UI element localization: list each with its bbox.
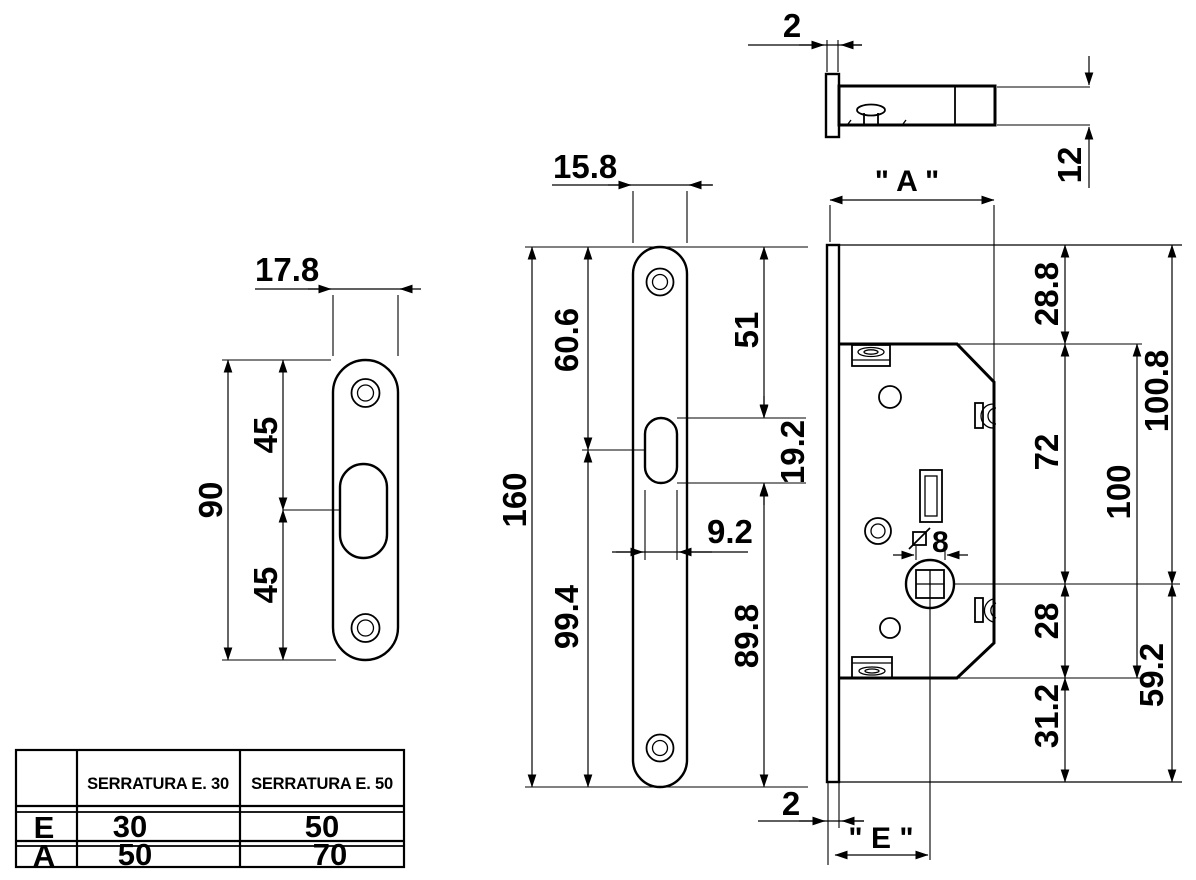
dim-label-89-8: 89.8: [728, 604, 765, 668]
lock-case-outline: [839, 344, 994, 678]
table-cell-A-50: 50: [118, 837, 152, 872]
faceplate-screw-hole-bottom: [647, 735, 674, 762]
faceplate-view: 15.8 160 60.6 99.4 51: [496, 148, 811, 787]
dim-case-width-A: " A ": [830, 165, 994, 382]
table-cell-A-70: 70: [313, 837, 347, 872]
dim-label-100: 100: [1100, 464, 1137, 519]
latch-bolt-bottom: [852, 657, 892, 678]
table-header-e50: SERRATURA E. 50: [251, 775, 393, 793]
dim-right-chain-1: 28.8 72 28 31.2: [1028, 245, 1065, 782]
dim-label-15-8: 15.8: [553, 148, 617, 185]
back-plate-screw-hole-top: [352, 379, 380, 407]
back-plate-slot: [340, 464, 387, 558]
dim-label-90: 90: [192, 482, 229, 519]
drawing-svg: 17.8 90 45 45: [0, 0, 1196, 880]
dim-right-chain-2: 100.8 59.2: [1133, 245, 1175, 782]
dim-side-plate-thickness: 2: [748, 7, 862, 72]
lock-case-view: " A " 8 28.8 72: [758, 165, 1182, 865]
back-plate-view: 17.8 90 45 45: [192, 251, 421, 660]
faceplate-latch-slot: [645, 418, 677, 483]
side-view-rivet: [848, 105, 906, 125]
dim-label-160: 160: [496, 472, 533, 527]
latch-bolt-top: [852, 345, 890, 366]
dim-faceplate-left-chain: 60.6 99.4: [548, 247, 645, 787]
dim-faceplate-width: 15.8: [552, 148, 713, 243]
dim-label-99-4: 99.4: [548, 584, 585, 649]
case-hole-upper: [879, 386, 901, 408]
dim-side-case-thickness: 12: [997, 56, 1090, 188]
dim-label-60-6: 60.6: [548, 308, 585, 372]
dim-label-72: 72: [1028, 434, 1065, 471]
dim-label-9-2: 9.2: [707, 513, 753, 550]
case-hole-lower: [880, 618, 900, 638]
dim-label-E: " E ": [848, 822, 913, 855]
dim-case-height-100: 100: [1100, 344, 1137, 678]
faceplate-outline: [633, 247, 687, 787]
dim-label-51: 51: [728, 312, 765, 349]
dim-back-plate-halves: 45 45: [247, 360, 340, 660]
dim-label-100-8: 100.8: [1138, 350, 1175, 433]
lock-size-table: SERRATURA E. 30 SERRATURA E. 50 E 30 50 …: [16, 750, 404, 873]
faceplate-screw-hole-top: [647, 269, 674, 296]
lock-technical-drawing: 17.8 90 45 45: [0, 0, 1196, 880]
dim-label-8: 8: [932, 526, 949, 559]
dim-label-59-2: 59.2: [1133, 643, 1170, 707]
dim-label-45-bottom: 45: [247, 567, 284, 604]
table-header-e30: SERRATURA E. 30: [87, 775, 229, 793]
dim-back-plate-width: 17.8: [255, 251, 421, 356]
dim-label-19-2: 19.2: [774, 420, 811, 484]
dim-label-28-8: 28.8: [1028, 262, 1065, 326]
dim-bottom: 2 " E ": [758, 782, 928, 865]
dim-label-2-top: 2: [783, 7, 801, 44]
back-plate-outline: [333, 360, 398, 660]
side-view: 2 12: [748, 7, 1090, 188]
dim-label-31-2: 31.2: [1028, 684, 1065, 748]
cylinder-hole: [865, 518, 891, 544]
dim-label-28: 28: [1028, 603, 1065, 640]
dim-spindle-square-8: 8: [893, 526, 968, 560]
back-plate-screw-hole-bottom: [352, 614, 380, 642]
dim-label-17-8: 17.8: [255, 251, 319, 288]
dim-label-2-bottom: 2: [782, 785, 800, 822]
spring-slot: [920, 470, 942, 522]
side-view-faceplate: [826, 74, 839, 137]
dim-label-12: 12: [1051, 147, 1088, 184]
dim-label-45-top: 45: [247, 417, 284, 454]
dim-label-A: " A ": [875, 165, 940, 198]
table-row-label-A: A: [33, 838, 55, 873]
main-faceplate: [827, 245, 839, 782]
